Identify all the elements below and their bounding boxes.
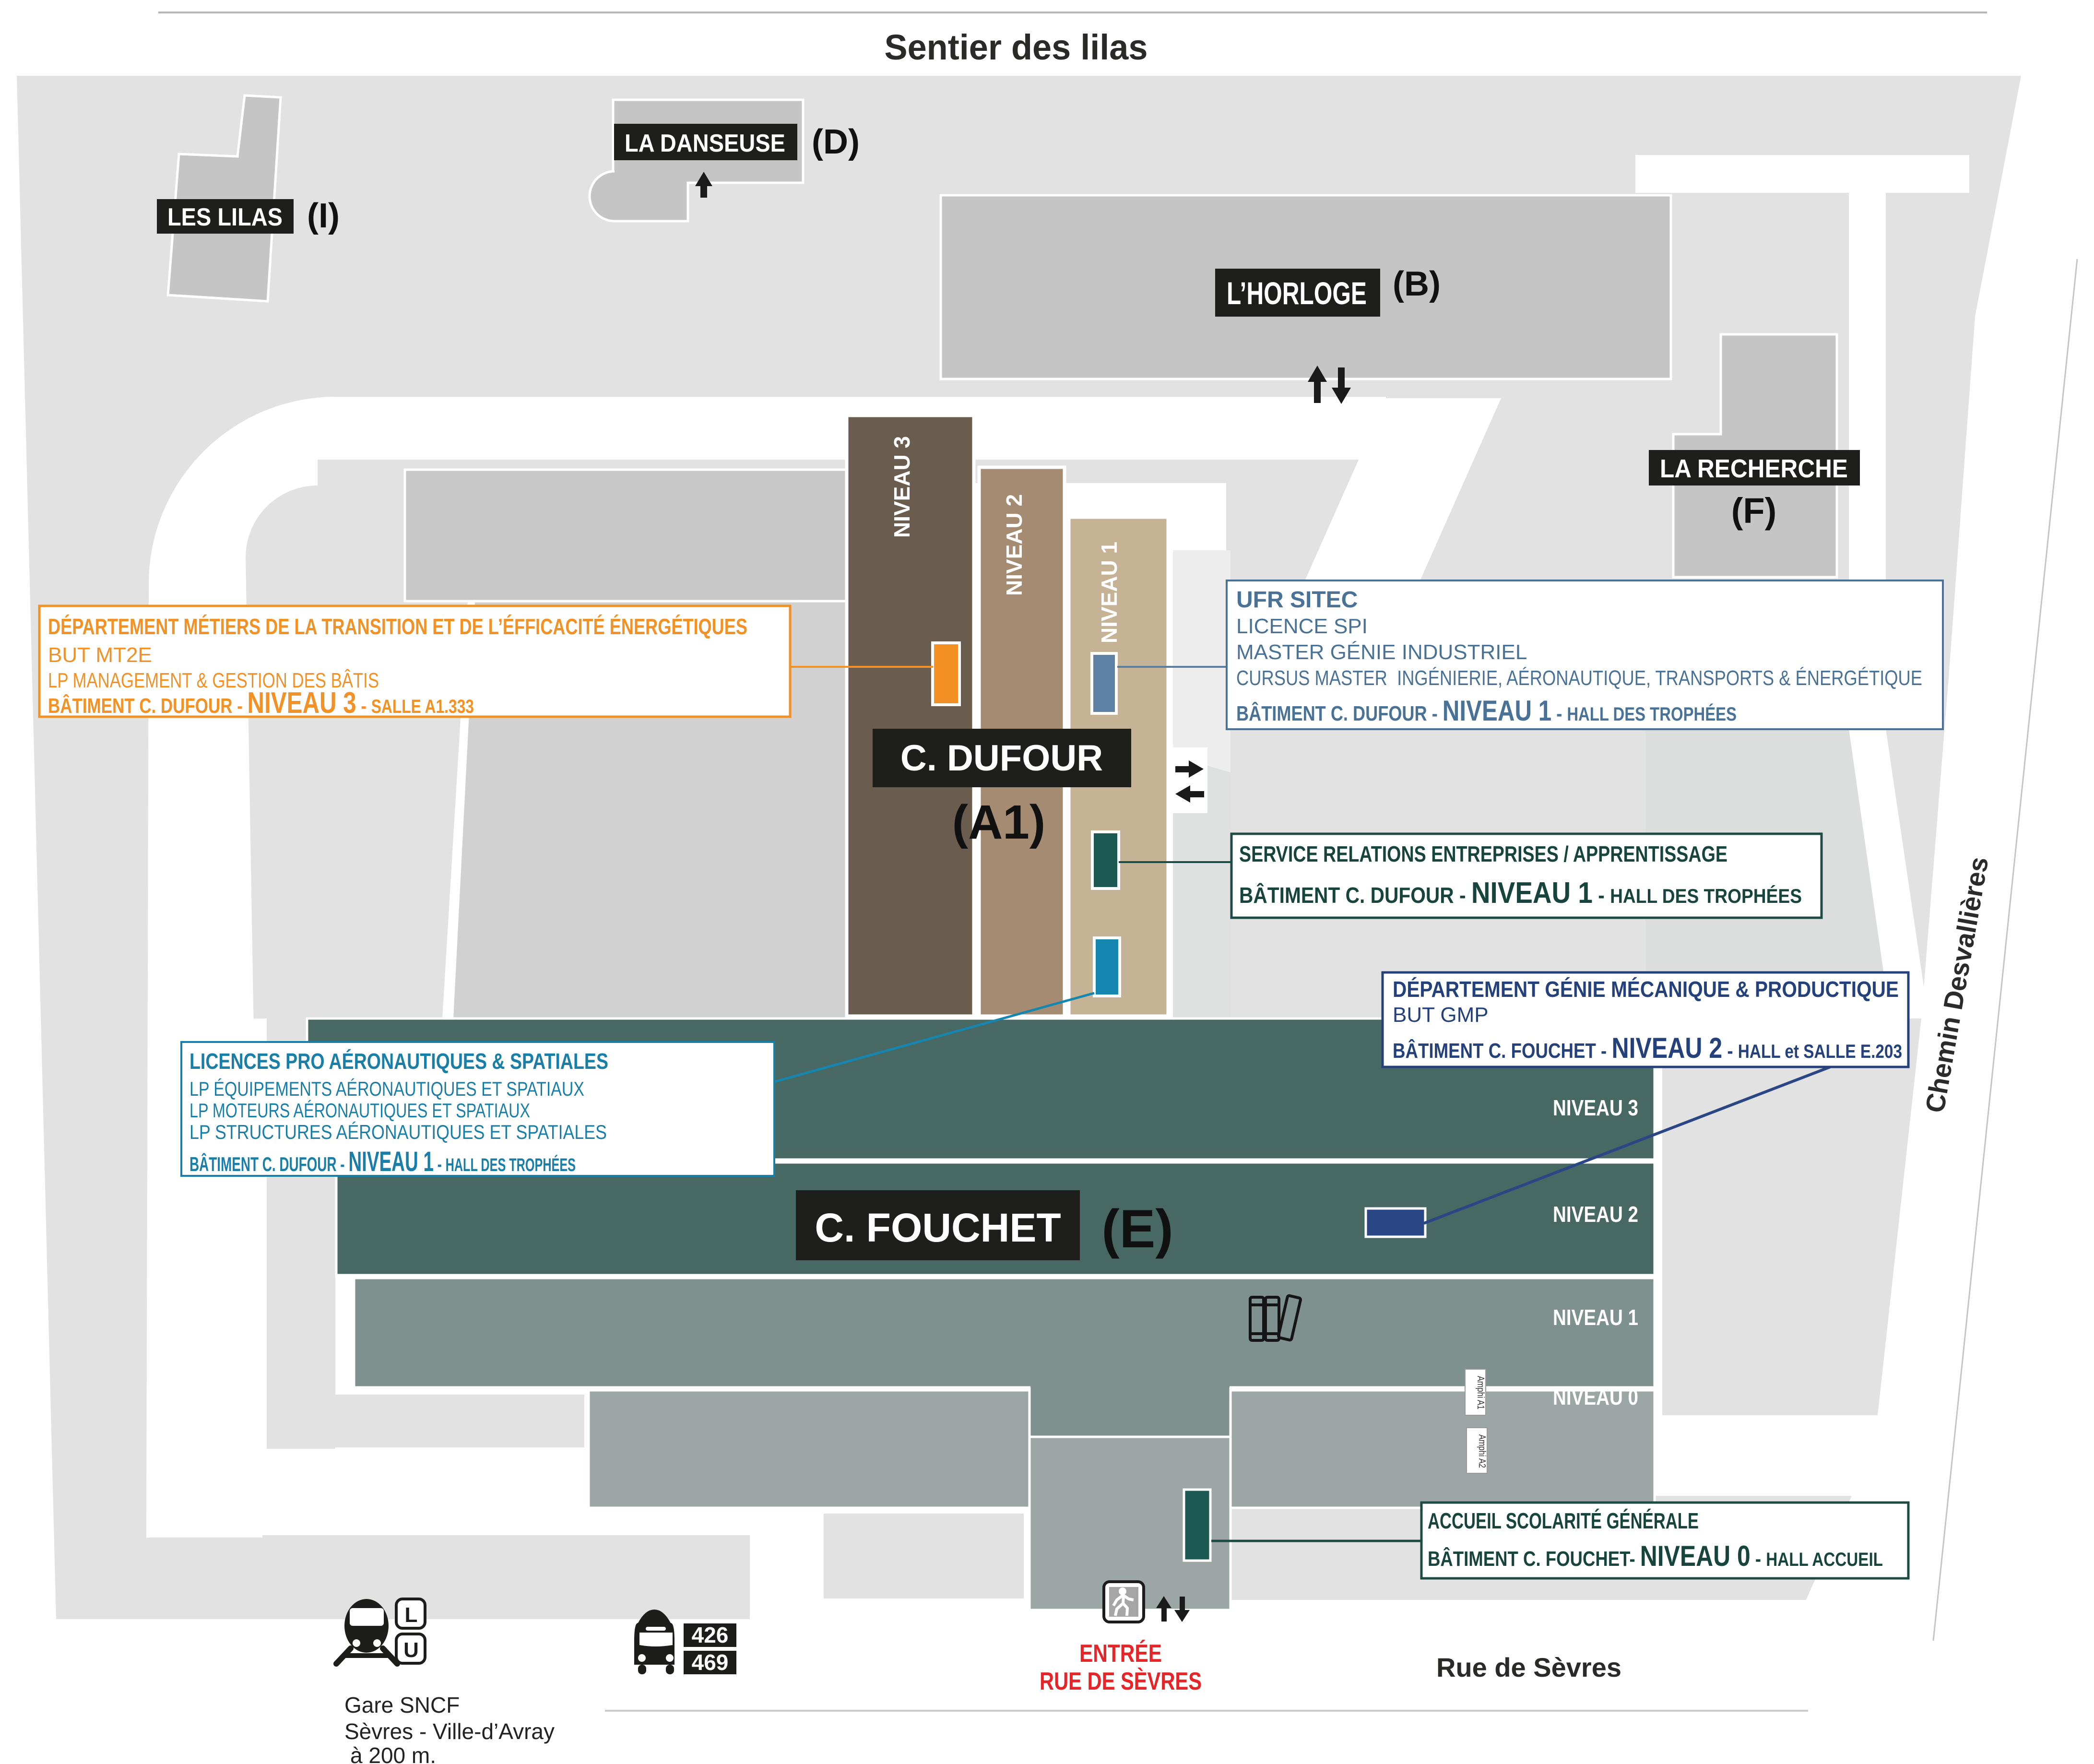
svg-text:U: U	[403, 1638, 419, 1662]
svg-text:DÉPARTEMENT MÉTIERS DE LA TRAN: DÉPARTEMENT MÉTIERS DE LA TRANSITION ET …	[48, 614, 747, 639]
svg-text:(D): (D)	[812, 123, 860, 161]
svg-text:LP STRUCTURES AÉRONAUTIQUES ET: LP STRUCTURES AÉRONAUTIQUES ET SPATIALES	[189, 1121, 607, 1143]
svg-text:(F): (F)	[1731, 491, 1777, 531]
svg-text:(B): (B)	[1393, 265, 1441, 303]
svg-text:NIVEAU 1: NIVEAU 1	[1097, 542, 1122, 643]
svg-text:L’HORLOGE: L’HORLOGE	[1227, 275, 1367, 311]
svg-text:Sèvres - Ville-d’Avray: Sèvres - Ville-d’Avray	[344, 1719, 555, 1744]
svg-text:ACCUEIL SCOLARITÉ GÉNÉRALE: ACCUEIL SCOLARITÉ GÉNÉRALE	[1428, 1508, 1699, 1533]
svg-text:MASTER GÉNIE INDUSTRIEL: MASTER GÉNIE INDUSTRIEL	[1236, 640, 1527, 664]
svg-text:BUT GMP: BUT GMP	[1393, 1003, 1489, 1027]
svg-text:NIVEAU 0: NIVEAU 0	[1553, 1385, 1638, 1409]
svg-text:426: 426	[692, 1622, 729, 1647]
svg-text:NIVEAU 3: NIVEAU 3	[1553, 1095, 1638, 1120]
svg-text:C. FOUCHET: C. FOUCHET	[815, 1205, 1061, 1250]
svg-text:NIVEAU 3: NIVEAU 3	[889, 436, 914, 538]
svg-text:LP MOTEURS AÉRONAUTIQUES ET SP: LP MOTEURS AÉRONAUTIQUES ET SPATIAUX	[189, 1099, 530, 1122]
svg-text:L: L	[405, 1603, 418, 1627]
svg-text:469: 469	[692, 1650, 729, 1675]
svg-text:NIVEAU 2: NIVEAU 2	[1553, 1202, 1638, 1227]
svg-text:(E): (E)	[1101, 1199, 1173, 1259]
svg-text:LA DANSEUSE: LA DANSEUSE	[625, 130, 785, 157]
svg-text:Rue de Sèvres: Rue de Sèvres	[1436, 1652, 1621, 1682]
svg-text:LP ÉQUIPEMENTS AÉRONAUTIQUES E: LP ÉQUIPEMENTS AÉRONAUTIQUES ET SPATIAUX	[189, 1077, 584, 1100]
svg-text:(A1): (A1)	[952, 795, 1045, 849]
svg-text:SERVICE RELATIONS ENTREPRISES: SERVICE RELATIONS ENTREPRISES / APPRENTI…	[1239, 841, 1727, 866]
svg-text:ENTRÉE: ENTRÉE	[1079, 1640, 1162, 1668]
svg-text:CURSUS MASTER INGÉNIERIE, AÉR: CURSUS MASTER INGÉNIERIE, AÉRONAUTIQUE, …	[1236, 666, 1922, 690]
svg-text:Amphi A1: Amphi A1	[1475, 1376, 1486, 1409]
svg-text:RUE DE SÈVRES: RUE DE SÈVRES	[1040, 1668, 1202, 1695]
svg-text:LICENCE SPI: LICENCE SPI	[1236, 615, 1368, 638]
svg-text:LICENCES PRO AÉRONAUTIQUES & S: LICENCES PRO AÉRONAUTIQUES & SPATIALES	[189, 1049, 608, 1074]
svg-text:Sentier des lilas: Sentier des lilas	[885, 27, 1148, 67]
svg-text:Gare SNCF: Gare SNCF	[344, 1693, 460, 1717]
svg-text:UFR SITEC: UFR SITEC	[1236, 587, 1358, 613]
svg-text:LES LILAS: LES LILAS	[167, 203, 283, 231]
svg-text:(I): (I)	[307, 197, 340, 235]
svg-text:DÉPARTEMENT GÉNIE MÉCANIQUE &: DÉPARTEMENT GÉNIE MÉCANIQUE & PRODUCTIQU…	[1393, 977, 1899, 1002]
svg-text:à 200 m.: à 200 m.	[350, 1743, 436, 1764]
svg-text:NIVEAU 1: NIVEAU 1	[1553, 1305, 1638, 1330]
svg-text:LA RECHERCHE: LA RECHERCHE	[1660, 454, 1848, 483]
svg-text:BUT MT2E: BUT MT2E	[48, 643, 152, 667]
svg-text:NIVEAU 2: NIVEAU 2	[1002, 494, 1027, 596]
svg-text:Amphi A2: Amphi A2	[1477, 1434, 1487, 1468]
svg-text:C. DUFOUR: C. DUFOUR	[900, 738, 1103, 779]
